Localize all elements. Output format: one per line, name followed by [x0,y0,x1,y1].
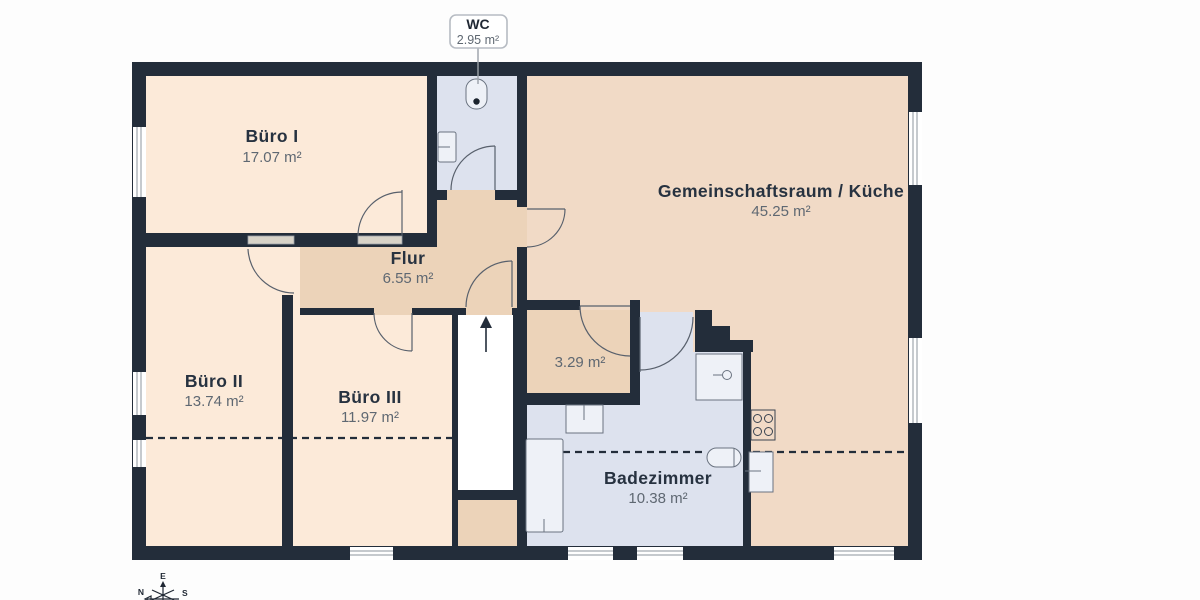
room-buero-3 [293,315,452,546]
area-badezimmer: 10.38 m² [628,490,687,507]
room-niche [527,310,630,393]
area-buero-1: 17.07 m² [242,149,301,166]
label-flur: Flur [391,248,426,268]
bathtub-icon [526,439,563,532]
entry-shaft [437,200,517,247]
under-stairs-area [458,500,517,546]
compass-top-letter: E [160,571,166,581]
bathroom-toilet-icon [707,448,741,467]
label-buero-1: Büro I [246,126,299,146]
area-niche: 3.29 m² [555,354,606,371]
area-buero-2: 13.74 m² [184,393,243,410]
bathroom-sink-icon [566,405,603,433]
info-sidebar: php PHP IMMOBILIEN Wohnfläche(1) 111.2 m… [930,0,1076,600]
label-buero-3: Büro III [338,387,401,407]
compass-icon: E N S [138,571,188,600]
wc-callout-name: WC [466,16,489,32]
label-buero-2: Büro II [185,371,243,391]
compass-right-letter: S [182,588,188,598]
floorplan-page: WC 2.95 m² Büro I 17.07 m² Gemeinschafts… [0,0,1200,600]
kitchen-sink-icon [745,452,773,492]
badezimmer-entry [640,312,693,405]
area-buero-3: 11.97 m² [341,409,399,426]
compass-left-letter: N [138,587,144,597]
wc-door-gap [447,190,495,200]
wc-callout-area: 2.95 m² [457,33,499,47]
shower-icon [696,354,742,400]
area-flur: 6.55 m² [383,270,434,287]
wc-toilet-icon [466,79,487,109]
label-badezimmer: Badezimmer [604,468,712,488]
label-gemeinschaftsraum: Gemeinschaftsraum / Küche [658,181,904,201]
wc-sink-icon [438,132,456,162]
area-gemeinschaftsraum: 45.25 m² [751,203,810,220]
